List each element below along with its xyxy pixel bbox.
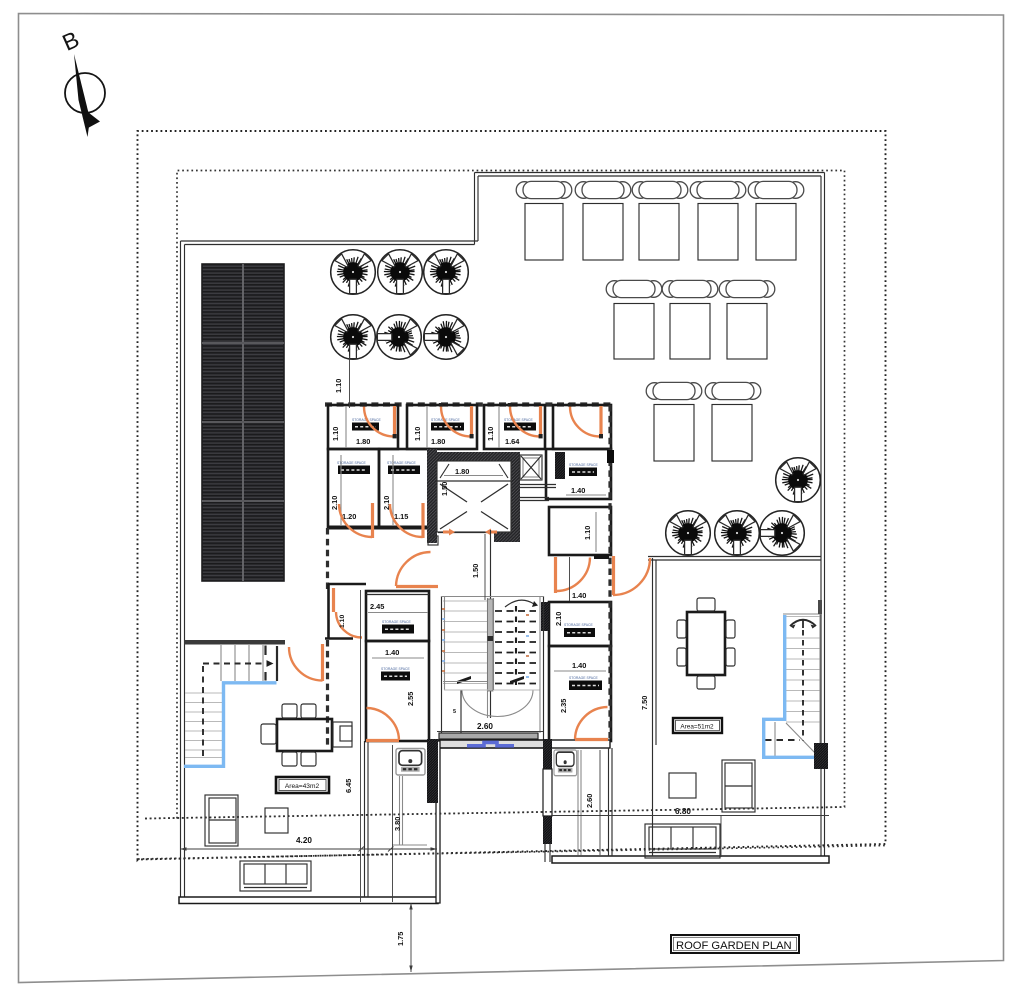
svg-text:6.45: 6.45 — [344, 779, 353, 793]
svg-text:1.40: 1.40 — [572, 661, 586, 670]
svg-text:1.15: 1.15 — [394, 512, 408, 521]
svg-text:1.10: 1.10 — [331, 427, 340, 441]
svg-text:7.50: 7.50 — [640, 696, 649, 710]
svg-text:STORAGE SPACE: STORAGE SPACE — [381, 667, 410, 671]
svg-text:STORAGE SPACE: STORAGE SPACE — [504, 418, 533, 422]
svg-text:1.40: 1.40 — [385, 648, 399, 657]
svg-text:5: 5 — [453, 709, 456, 715]
svg-text:1.80: 1.80 — [356, 437, 370, 446]
svg-text:2.55: 2.55 — [406, 692, 415, 706]
svg-text:1.10: 1.10 — [413, 427, 422, 441]
svg-text:STORAGE SPACE: STORAGE SPACE — [569, 463, 598, 467]
svg-text:2.35: 2.35 — [559, 699, 568, 713]
svg-text:1.10: 1.10 — [583, 526, 592, 540]
svg-text:2.60: 2.60 — [477, 722, 493, 731]
svg-text:1.40: 1.40 — [572, 591, 586, 600]
svg-text:1.10: 1.10 — [334, 379, 343, 393]
svg-text:ROOF GARDEN PLAN: ROOF GARDEN PLAN — [676, 940, 792, 952]
svg-text:1.10: 1.10 — [339, 615, 346, 628]
svg-text:STORAGE SPACE: STORAGE SPACE — [564, 623, 593, 627]
svg-text:1.40: 1.40 — [571, 486, 585, 495]
svg-text:2.60: 2.60 — [585, 794, 594, 808]
svg-text:STORAGE SPACE: STORAGE SPACE — [569, 676, 598, 680]
svg-text:2.10: 2.10 — [330, 496, 339, 510]
svg-text:STORAGE SPACE: STORAGE SPACE — [387, 461, 416, 465]
svg-text:1.75: 1.75 — [396, 932, 405, 946]
svg-text:6.80: 6.80 — [675, 807, 691, 816]
svg-text:1.64: 1.64 — [505, 437, 520, 446]
svg-text:STORAGE SPACE: STORAGE SPACE — [382, 620, 411, 624]
svg-text:Area=51m2: Area=51m2 — [680, 723, 714, 730]
svg-text:1.80: 1.80 — [455, 467, 469, 476]
svg-text:4.20: 4.20 — [296, 836, 312, 845]
svg-text:1.10: 1.10 — [486, 427, 495, 441]
svg-text:1.50: 1.50 — [440, 482, 449, 496]
svg-text:3.80: 3.80 — [393, 817, 402, 831]
svg-text:Area=43m2: Area=43m2 — [285, 783, 320, 790]
svg-text:1.80: 1.80 — [431, 437, 445, 446]
svg-text:1.50: 1.50 — [471, 564, 480, 578]
svg-text:2.45: 2.45 — [370, 602, 384, 611]
svg-text:2.10: 2.10 — [554, 612, 563, 626]
